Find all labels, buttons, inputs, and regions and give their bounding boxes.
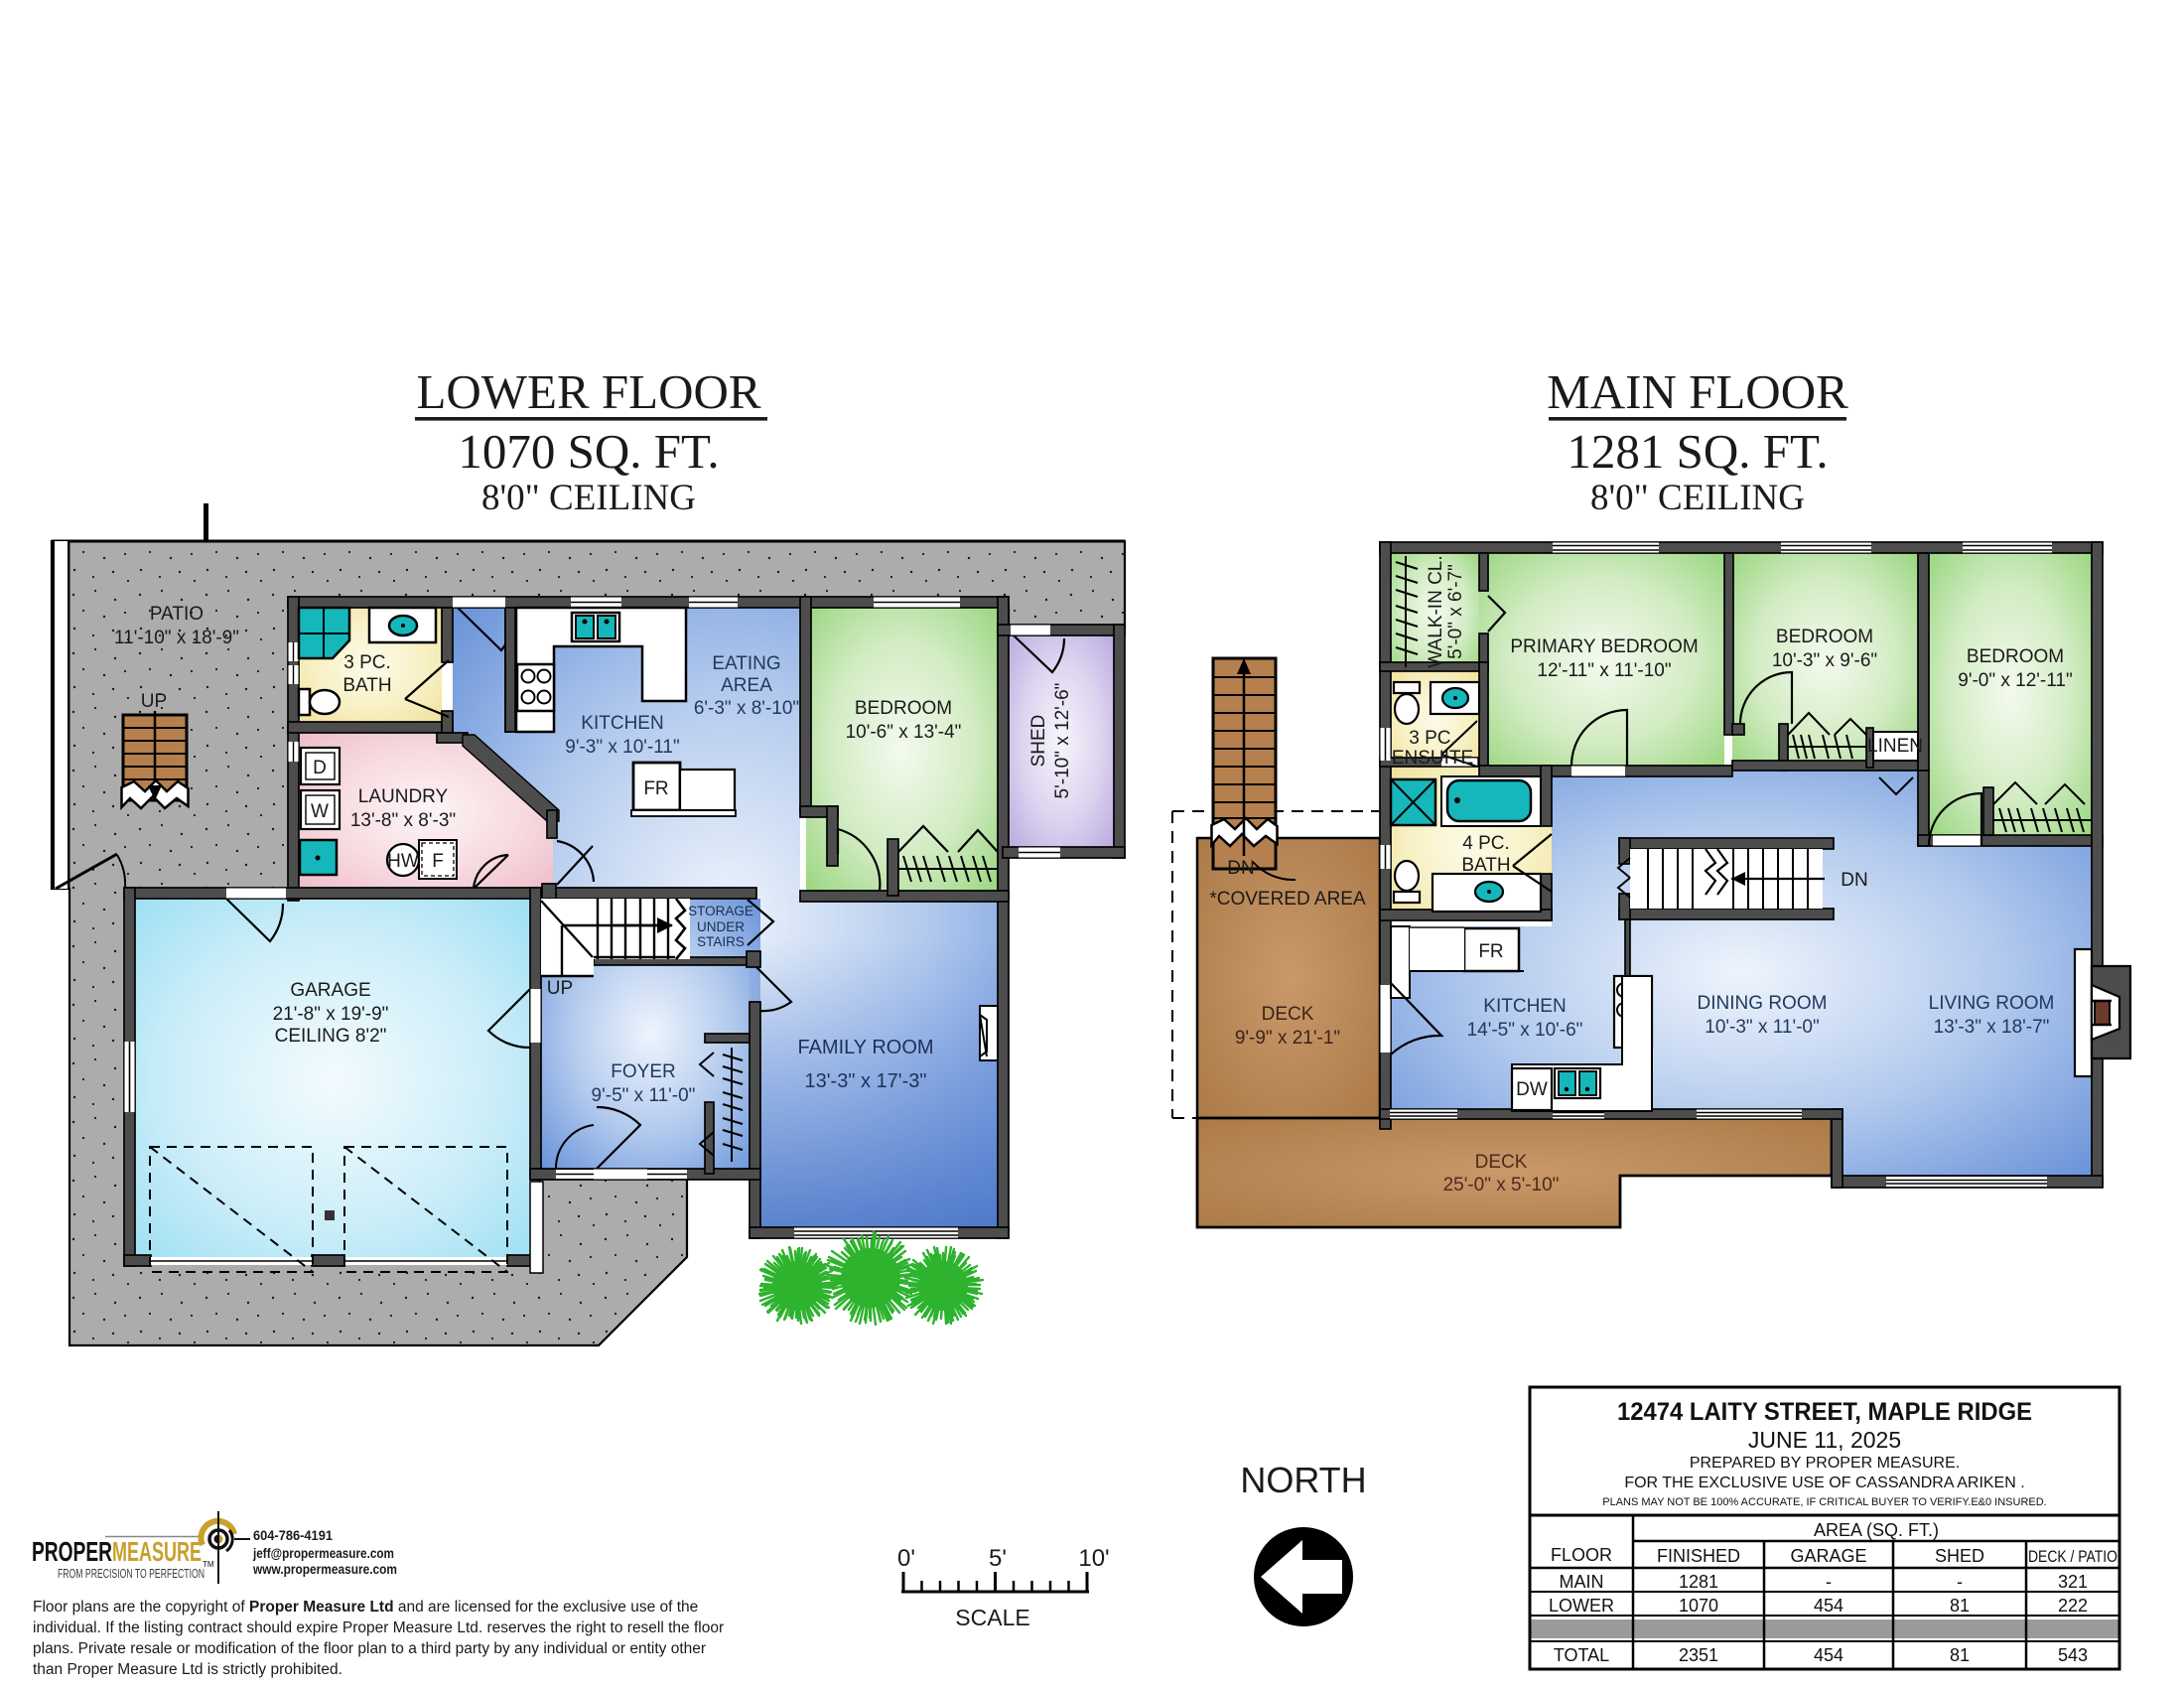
svg-text:LAUNDRY: LAUNDRY: [358, 786, 449, 807]
svg-text:LIVING ROOM: LIVING ROOM: [1929, 993, 2055, 1014]
svg-text:21'-8" x 19'-9": 21'-8" x 19'-9": [273, 1004, 389, 1025]
svg-text:Floor plans are the copyright: Floor plans are the copyright of Proper …: [33, 1599, 698, 1616]
svg-text:4 PC.: 4 PC.: [1462, 833, 1510, 854]
svg-text:PLANS MAY NOT BE 100% ACCURATE: PLANS MAY NOT BE 100% ACCURATE, IF CRITI…: [1602, 1496, 2046, 1508]
svg-text:FAMILY ROOM: FAMILY ROOM: [797, 1037, 933, 1058]
svg-text:FOR THE EXCLUSIVE USE OF CASSA: FOR THE EXCLUSIVE USE OF CASSANDRA ARIKE…: [1624, 1475, 2024, 1491]
svg-text:FINISHED: FINISHED: [1657, 1546, 1740, 1566]
svg-text:222: 222: [2058, 1596, 2088, 1616]
svg-text:12474 LAITY STREET, MAPLE RIDG: 12474 LAITY STREET, MAPLE RIDGE: [1617, 1398, 2032, 1426]
svg-text:NORTH: NORTH: [1240, 1460, 1366, 1500]
svg-text:9'-5" x 11'-0": 9'-5" x 11'-0": [592, 1085, 696, 1106]
svg-text:W: W: [311, 801, 329, 822]
svg-text:12'-11" x 11'-10": 12'-11" x 11'-10": [1537, 660, 1671, 681]
svg-text:than Proper Measure Ltd is str: than Proper Measure Ltd is strictly proh…: [33, 1661, 342, 1678]
svg-text:81: 81: [1950, 1596, 1970, 1616]
svg-text:DECK / PATIO: DECK / PATIO: [2028, 1547, 2117, 1566]
svg-text:MEASURE: MEASURE: [112, 1536, 202, 1567]
svg-text:FR: FR: [1478, 941, 1503, 962]
svg-text:www.propermeasure.com: www.propermeasure.com: [252, 1562, 397, 1577]
svg-text:11'-10" x 18'-9": 11'-10" x 18'-9": [114, 628, 239, 648]
svg-text:5'-10" x 12'-6": 5'-10" x 12'-6": [1052, 683, 1073, 799]
svg-text:TOTAL: TOTAL: [1554, 1645, 1609, 1665]
svg-text:1070 SQ. FT.: 1070 SQ. FT.: [458, 424, 719, 479]
svg-text:LOWER: LOWER: [1549, 1596, 1614, 1616]
svg-text:SHED: SHED: [1028, 715, 1049, 768]
svg-text:CEILING 8'2": CEILING 8'2": [275, 1026, 387, 1047]
svg-text:STAIRS: STAIRS: [697, 934, 745, 949]
svg-text:STORAGE: STORAGE: [688, 904, 753, 918]
svg-text:jeff@propermeasure.com: jeff@propermeasure.com: [252, 1546, 394, 1561]
svg-text:BEDROOM: BEDROOM: [1776, 627, 1873, 647]
svg-text:*COVERED AREA: *COVERED AREA: [1209, 889, 1366, 910]
svg-text:PATIO: PATIO: [150, 604, 204, 625]
svg-text:BEDROOM: BEDROOM: [855, 698, 952, 719]
svg-text:321: 321: [2058, 1572, 2088, 1592]
svg-text:13'-3" x 17'-3": 13'-3" x 17'-3": [804, 1070, 926, 1092]
svg-text:GARAGE: GARAGE: [290, 980, 370, 1001]
svg-text:GARAGE: GARAGE: [1790, 1546, 1866, 1566]
svg-text:PREPARED BY PROPER MEASURE.: PREPARED BY PROPER MEASURE.: [1690, 1455, 1960, 1472]
svg-text:LINEN: LINEN: [1867, 736, 1923, 757]
svg-text:3 PC.: 3 PC.: [1409, 728, 1456, 749]
svg-text:LOWER FLOOR: LOWER FLOOR: [416, 364, 760, 419]
svg-text:2351: 2351: [1679, 1645, 1718, 1665]
svg-text:FLOOR: FLOOR: [1551, 1545, 1612, 1565]
svg-text:1070: 1070: [1679, 1596, 1718, 1616]
svg-text:8'0" CEILING: 8'0" CEILING: [481, 478, 696, 518]
svg-text:DECK: DECK: [1475, 1152, 1528, 1173]
svg-text:PROPER: PROPER: [32, 1536, 112, 1567]
svg-text:BATH: BATH: [342, 675, 391, 696]
svg-text:SCALE: SCALE: [955, 1605, 1029, 1630]
svg-text:UP: UP: [547, 978, 573, 999]
svg-text:EATING: EATING: [712, 653, 780, 674]
svg-text:UNDER: UNDER: [697, 919, 745, 934]
svg-text:KITCHEN: KITCHEN: [581, 713, 663, 734]
svg-text:9'-3" x 10'-11": 9'-3" x 10'-11": [565, 737, 679, 758]
svg-text:5'-0" x 6'-7": 5'-0" x 6'-7": [1445, 564, 1466, 659]
svg-text:-: -: [1826, 1572, 1832, 1592]
svg-text:0': 0': [897, 1545, 915, 1572]
svg-text:6'-3" x 8'-10": 6'-3" x 8'-10": [694, 698, 799, 719]
svg-text:3 PC.: 3 PC.: [343, 652, 391, 673]
svg-text:454: 454: [1814, 1645, 1843, 1665]
svg-text:FOYER: FOYER: [611, 1061, 675, 1082]
svg-text:13'-8" x 8'-3": 13'-8" x 8'-3": [350, 810, 456, 831]
svg-text:454: 454: [1814, 1596, 1843, 1616]
svg-text:individual. If the listing co: individual. If the listing contract shou…: [33, 1619, 724, 1636]
svg-text:543: 543: [2058, 1645, 2088, 1665]
svg-text:10'-3" x 9'-6": 10'-3" x 9'-6": [1772, 650, 1877, 671]
svg-text:SHED: SHED: [1935, 1546, 1984, 1566]
svg-text:81: 81: [1950, 1645, 1970, 1665]
svg-text:604-786-4191: 604-786-4191: [253, 1528, 333, 1543]
svg-text:9'-9" x 21'-1": 9'-9" x 21'-1": [1235, 1028, 1340, 1049]
svg-text:HW: HW: [387, 851, 419, 872]
svg-text:WALK-IN CL.: WALK-IN CL.: [1426, 555, 1446, 667]
svg-text:ENSUITE: ENSUITE: [1392, 748, 1473, 769]
svg-text:10'-3" x 11'-0": 10'-3" x 11'-0": [1705, 1017, 1819, 1038]
svg-text:KITCHEN: KITCHEN: [1483, 996, 1566, 1017]
svg-text:F: F: [432, 851, 444, 872]
svg-text:10': 10': [1078, 1545, 1109, 1572]
svg-text:AREA: AREA: [721, 675, 772, 696]
svg-text:FROM PRECISION TO PERFECTION: FROM PRECISION TO PERFECTION: [58, 1567, 205, 1581]
svg-text:8'0" CEILING: 8'0" CEILING: [1590, 478, 1805, 518]
svg-text:D: D: [313, 758, 327, 778]
svg-text:5': 5': [989, 1545, 1007, 1572]
svg-text:13'-3" x 18'-7": 13'-3" x 18'-7": [1934, 1017, 2050, 1038]
svg-text:DINING ROOM: DINING ROOM: [1698, 993, 1828, 1014]
svg-text:1281 SQ. FT.: 1281 SQ. FT.: [1567, 424, 1828, 479]
svg-text:BEDROOM: BEDROOM: [1967, 646, 2064, 667]
svg-text:14'-5" x 10'-6": 14'-5" x 10'-6": [1467, 1020, 1583, 1041]
svg-text:25'-0" x 5'-10": 25'-0" x 5'-10": [1443, 1175, 1560, 1196]
svg-text:1281: 1281: [1679, 1572, 1718, 1592]
svg-text:FR: FR: [643, 778, 668, 799]
svg-text:plans. Private resale or modi: plans. Private resale or modification of…: [33, 1640, 706, 1657]
svg-text:MAIN FLOOR: MAIN FLOOR: [1547, 364, 1848, 419]
svg-text:BATH: BATH: [1461, 855, 1510, 876]
svg-text:DN: DN: [1841, 870, 1867, 891]
svg-text:-: -: [1957, 1572, 1963, 1592]
svg-text:AREA (SQ. FT.): AREA (SQ. FT.): [1814, 1520, 1939, 1540]
svg-text:PRIMARY BEDROOM: PRIMARY BEDROOM: [1510, 636, 1698, 657]
svg-text:UP: UP: [141, 691, 167, 712]
svg-text:DECK: DECK: [1262, 1004, 1314, 1025]
svg-text:DW: DW: [1516, 1079, 1548, 1100]
svg-text:MAIN: MAIN: [1560, 1572, 1604, 1592]
svg-text:JUNE 11, 2025: JUNE 11, 2025: [1748, 1427, 1901, 1453]
svg-text:9'-0" x 12'-11": 9'-0" x 12'-11": [1958, 670, 2072, 691]
svg-text:10'-6" x 13'-4": 10'-6" x 13'-4": [846, 722, 962, 743]
svg-text:DN: DN: [1227, 858, 1254, 879]
